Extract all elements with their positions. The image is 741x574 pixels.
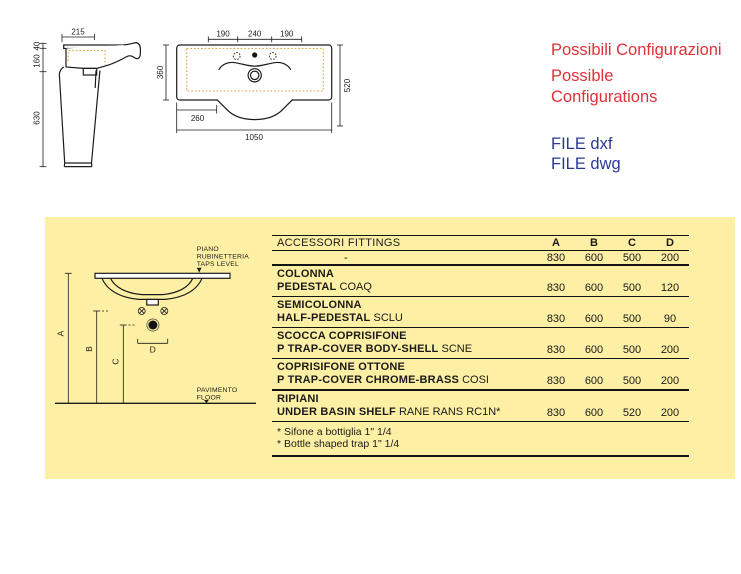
table-row-under-basin-shelf: RIPIANI UNDER BASIN SHELF RANE RANS RC1N… [272,391,689,422]
dim-190-left: 190 [216,30,230,39]
taps-level-label-1: PIANO [197,246,219,253]
table-row-trap-cover-shell: SCOCCA COPRISIFONE P TRAP-COVER BODY-SHE… [272,328,689,359]
cell-b: 600 [575,407,613,419]
installation-diagram: A B C D PIANO RUBINETTERIA TAPS LEVEL PA… [48,228,278,418]
configurations-block: Possibili Configurazioni Possible Config… [551,40,723,174]
dim-630: 630 [33,111,42,125]
basin-apron-curve [217,100,293,120]
table-footnotes: * Sifone a bottiglia 1" 1/4 * Bottle sha… [272,422,689,457]
file-dxf-link[interactable]: FILE dxf [551,135,723,155]
dim-520: 520 [343,78,352,92]
cell-a: 830 [537,344,575,356]
table-row-basin: - 830 600 500 200 [272,251,689,266]
dim-label-d: D [150,345,156,355]
fittings-table: ACCESSORI FITTINGS A B C D - 830 600 500… [272,235,689,457]
bowl-outer [102,278,202,299]
cell-d: 90 [651,313,689,325]
supply-connection-left [138,308,145,315]
cell-b: 600 [575,282,613,294]
cell-c: 500 [613,252,651,264]
bowl-inner [111,278,193,294]
bowl-drain [147,299,159,305]
cell-a: 830 [537,252,575,264]
row-name-it: SEMICOLONNA [272,299,689,313]
dim-190-right: 190 [280,30,294,39]
cell-d: 120 [651,282,689,294]
dim-260: 260 [191,114,205,123]
dim-360: 360 [156,65,165,79]
cell-d: 200 [651,252,689,264]
cell-d: 200 [651,344,689,356]
cell-b: 600 [575,313,613,325]
row-name-it: SCOCCA COPRISIFONE [272,330,689,344]
footnote-english: * Bottle shaped trap 1" 1/4 [277,438,689,451]
column-header-d: D [651,237,689,249]
basin-row-label: - [272,252,537,264]
cell-a: 830 [537,375,575,387]
cell-b: 600 [575,344,613,356]
waste-outlet [148,321,157,330]
file-links: FILE dxf FILE dwg [551,135,723,174]
column-header-b: B [575,237,613,249]
table-header-label: ACCESSORI FITTINGS [272,237,537,249]
table-header-row: ACCESSORI FITTINGS A B C D [272,235,689,251]
spec-panel: A B C D PIANO RUBINETTERIA TAPS LEVEL PA… [45,217,735,479]
pedestal-outline [59,67,100,167]
cell-d: 200 [651,407,689,419]
dim-240-center: 240 [248,30,262,39]
footnote-italian: * Sifone a bottiglia 1" 1/4 [277,426,689,439]
cell-c: 500 [613,282,651,294]
row-name-en: P TRAP-COVER CHROME-BRASS COSI [272,374,537,388]
row-name-it: COLONNA [272,268,689,282]
cell-c: 500 [613,344,651,356]
cell-b: 600 [575,375,613,387]
cell-a: 830 [537,407,575,419]
column-header-c: C [613,237,651,249]
row-name-en: PEDESTAL COAQ [272,281,537,295]
product-code: COSI [462,374,489,386]
cell-c: 500 [613,375,651,387]
table-row-trap-cover-brass: COPRISIFONE OTTONE P TRAP-COVER CHROME-B… [272,359,689,391]
tap-hole-center [252,52,257,57]
dim-label-c: C [111,358,121,364]
column-header-a: A [537,237,575,249]
dim-160: 160 [33,54,42,68]
cell-a: 830 [537,282,575,294]
row-name-en: UNDER BASIN SHELF RANE RANS RC1N* [272,406,537,420]
row-name-en: P TRAP-COVER BODY-SHELL SCNE [272,343,537,357]
product-code: SCNE [442,343,473,355]
file-dwg-link[interactable]: FILE dwg [551,155,723,175]
taps-level-arrow [197,268,202,273]
row-name-en: HALF-PEDESTAL SCLU [272,312,537,326]
cell-c: 500 [613,313,651,325]
headline-italian: Possibili Configurazioni [551,40,723,61]
supply-connection-right [161,308,168,315]
dim-label-b: B [84,346,94,352]
floor-label-1: PAVIMENTO [197,387,238,394]
floor-label-2: FLOOR [197,394,221,401]
taps-level-label-3: TAPS LEVEL [197,261,239,268]
cell-b: 600 [575,252,613,264]
table-row-pedestal: COLONNA PEDESTAL COAQ 830 600 500 120 [272,266,689,297]
taps-level-plate [95,273,230,278]
dim-1050: 1050 [245,133,263,142]
table-row-half-pedestal: SEMICOLONNA HALF-PEDESTAL SCLU 830 600 5… [272,297,689,328]
dim-label-a: A [56,330,66,336]
taps-level-label-2: RUBINETTERIA [197,253,250,260]
front-view-drawing: 190 240 190 360 520 260 1050 [155,8,370,158]
dim-40: 40 [33,41,42,50]
cell-c: 520 [613,407,651,419]
cell-a: 830 [537,313,575,325]
headline-english: Possible Configurations [551,66,723,108]
row-name-it: COPRISIFONE OTTONE [272,361,689,375]
row-name-it: RIPIANI [272,393,689,407]
cell-d: 200 [651,375,689,387]
product-code: RANE RANS RC1N* [399,406,500,418]
dim-215: 215 [71,28,85,37]
drain-fitting [83,68,96,75]
product-code: COAQ [340,281,372,293]
product-code: SCLU [374,312,403,324]
